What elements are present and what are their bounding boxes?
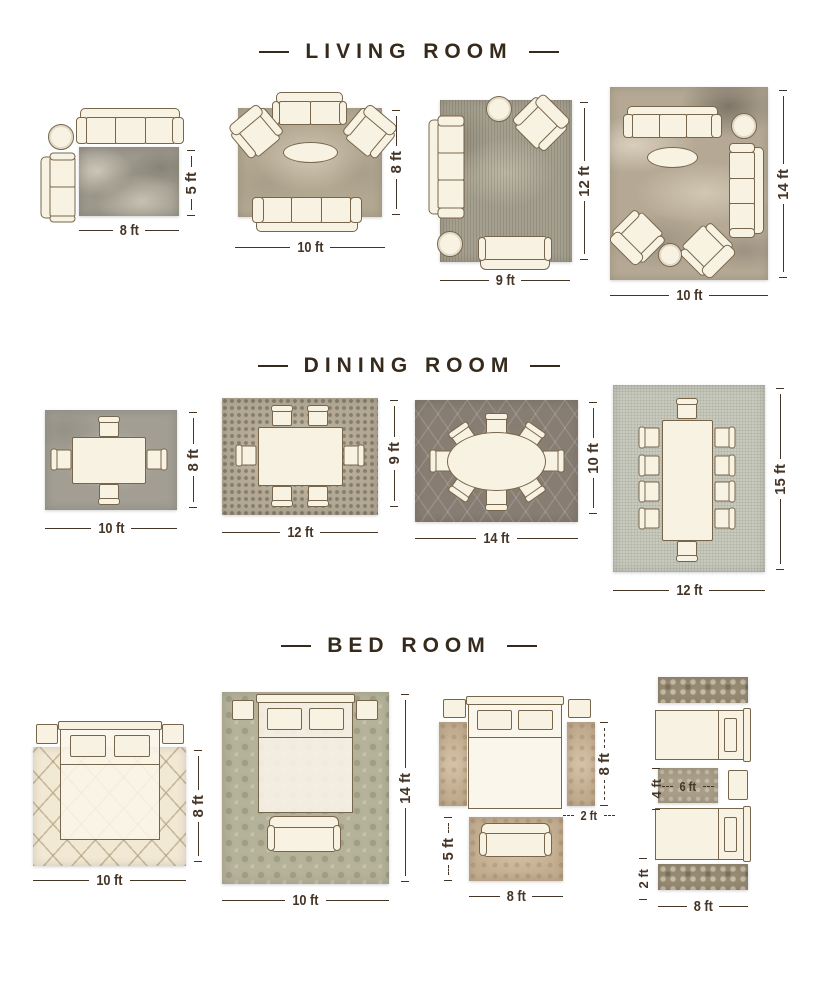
height-dimension: 15 ft: [772, 388, 788, 570]
section-title-text: LIVING ROOM: [305, 40, 512, 64]
title-dash: [259, 51, 289, 53]
title-dash: [281, 645, 311, 647]
dining-layout-12x9: 9 ft 12 ft: [215, 392, 401, 550]
headboard: [743, 708, 751, 762]
bed-layout-10x14: 14 ft 10 ft: [215, 685, 413, 913]
section-title-text: DINING ROOM: [304, 354, 515, 378]
dining-chair: [715, 428, 734, 448]
section-title-dining-room: DINING ROOM: [0, 354, 818, 378]
dining-chair: [344, 446, 363, 466]
dining-chair: [99, 418, 119, 437]
dining-chair: [486, 489, 507, 509]
width-dimension: 8 ft: [79, 222, 179, 238]
dining-chair: [715, 509, 734, 529]
nightstand: [162, 724, 184, 744]
dining-chair: [641, 456, 660, 476]
pillow: [309, 708, 344, 730]
height-dimension: 12 ft: [576, 102, 592, 260]
height-dimension: 14 ft: [775, 90, 791, 278]
dining-table: [258, 427, 343, 486]
dining-layout-12x15: 15 ft 12 ft: [606, 382, 792, 600]
nightstand: [568, 699, 591, 718]
sofa-seat: [623, 114, 722, 138]
dining-chair: [272, 407, 292, 426]
pillow: [724, 817, 737, 852]
width-dimension: 10 ft: [610, 287, 768, 303]
sofa: [623, 106, 722, 138]
headboard: [743, 806, 751, 862]
bed: [258, 697, 353, 813]
height-dimension: 9 ft: [386, 400, 402, 507]
headboard: [58, 721, 162, 730]
dining-chair: [53, 450, 72, 470]
sofa: [76, 108, 184, 144]
round-side-table: [658, 243, 682, 267]
dining-chair: [308, 407, 328, 426]
nightstand: [728, 770, 748, 800]
pillows: [267, 708, 343, 730]
dining-chair: [272, 486, 292, 505]
sofa-seat: [729, 143, 755, 238]
height-dimension: 8 ft: [190, 750, 206, 862]
round-side-table: [48, 124, 74, 150]
dining-table: [72, 437, 146, 484]
dining-chair: [641, 509, 660, 529]
dining-chair: [677, 541, 697, 560]
width-dimension: 10 ft: [33, 872, 186, 888]
height-dimension: 5 ft: [183, 150, 199, 216]
bed-layout-10x8: 8 ft 10 ft: [28, 698, 210, 894]
pillows: [477, 710, 552, 731]
dining-layout-10x8: 8 ft 10 ft: [38, 405, 202, 543]
title-dash: [530, 365, 560, 367]
dining-chair: [308, 486, 328, 505]
sofa-seat: [49, 152, 75, 222]
bench: [267, 816, 341, 852]
twin-bed: [655, 710, 747, 760]
pillow: [724, 718, 737, 752]
sofa: [428, 115, 464, 218]
height-dimension: 8 ft: [185, 412, 201, 508]
living-layout-10x8: 8 ft 10 ft: [222, 88, 404, 256]
runner-length-dimension: 8 ft: [596, 722, 612, 806]
dining-chair: [99, 484, 119, 503]
width-dimension: 10 ft: [235, 239, 385, 255]
height-dimension: 8 ft: [388, 110, 404, 215]
width-dimension: 9 ft: [440, 272, 570, 288]
round-side-table: [437, 231, 463, 257]
sofa: [729, 143, 764, 238]
runner-rug: [439, 722, 467, 806]
sofa-seat: [272, 101, 347, 125]
width-dimension: 12 ft: [613, 582, 765, 598]
nightstand: [232, 700, 254, 720]
dining-chair: [641, 482, 660, 502]
dining-chair: [715, 482, 734, 502]
twin-bed: [655, 808, 747, 860]
sofa: [252, 197, 362, 232]
nightstand: [356, 700, 378, 720]
bench: [479, 823, 552, 857]
height-dimension: 10 ft: [585, 402, 601, 514]
pillow: [518, 710, 552, 731]
dining-chair: [238, 446, 257, 466]
dining-layout-14x10: 10 ft 14 ft: [408, 392, 600, 556]
section-title-text: BED ROOM: [327, 634, 491, 658]
section-title-bed-room: BED ROOM: [0, 634, 818, 658]
width-dimension: 10 ft: [45, 520, 177, 536]
pillows: [70, 735, 150, 757]
living-layout-10x14: 14 ft 10 ft: [600, 85, 800, 305]
title-dash: [258, 365, 288, 367]
bed-layout-runners: 8 ft 2 ft 5 ft 8 ft: [430, 695, 618, 905]
height-dimension: 14 ft: [397, 694, 413, 882]
pillow: [267, 708, 302, 730]
runner-rug: [567, 722, 595, 806]
pillow: [114, 735, 151, 757]
oval-coffee-table: [647, 147, 698, 168]
runner-length-dimension: 8 ft: [658, 898, 748, 914]
oval-dining-table: [447, 432, 546, 491]
living-layout-8x5: 5 ft 8 ft: [38, 105, 206, 247]
round-side-table: [486, 96, 512, 122]
runner-width-dimension: 2 ft: [563, 807, 615, 823]
loveseat: [478, 236, 552, 270]
dining-chair: [147, 450, 166, 470]
pillow: [477, 710, 511, 731]
sofa: [272, 92, 347, 125]
headboard: [256, 694, 355, 703]
title-dash: [507, 645, 537, 647]
sofa-seat: [437, 115, 464, 218]
headboard: [466, 696, 564, 705]
bed: [468, 699, 562, 809]
rug-width-dimension: 6 ft: [662, 778, 714, 794]
runner-rug: [658, 864, 748, 890]
round-side-table: [731, 113, 757, 139]
loveseat: [40, 152, 75, 222]
section-title-living-room: LIVING ROOM: [0, 40, 818, 64]
dining-chair: [715, 456, 734, 476]
title-dash: [529, 51, 559, 53]
rug-width-dimension: 8 ft: [469, 888, 563, 904]
oval-coffee-table: [283, 142, 338, 163]
dining-chair: [641, 428, 660, 448]
bed: [60, 724, 160, 840]
nightstand: [443, 699, 466, 718]
sofa-seat: [76, 117, 184, 144]
dining-table: [662, 420, 713, 541]
width-dimension: 10 ft: [222, 892, 389, 908]
rug-size-guide: LIVING ROOM 5 ft 8 ft: [0, 0, 818, 1000]
sofa-seat: [252, 197, 362, 223]
pillow: [70, 735, 107, 757]
width-dimension: 12 ft: [222, 524, 378, 540]
nightstand: [36, 724, 58, 744]
bed-layout-twin: 4 ft 6 ft 2 ft 8 ft: [635, 672, 818, 918]
dining-chair: [677, 400, 697, 419]
rug-height-dimension: 5 ft: [440, 817, 456, 881]
width-dimension: 14 ft: [415, 530, 578, 546]
runner-width-dimension: 2 ft: [635, 858, 651, 894]
living-layout-9x12: 12 ft 9 ft: [428, 88, 604, 294]
rug: [79, 147, 179, 216]
runner-rug: [658, 677, 748, 703]
